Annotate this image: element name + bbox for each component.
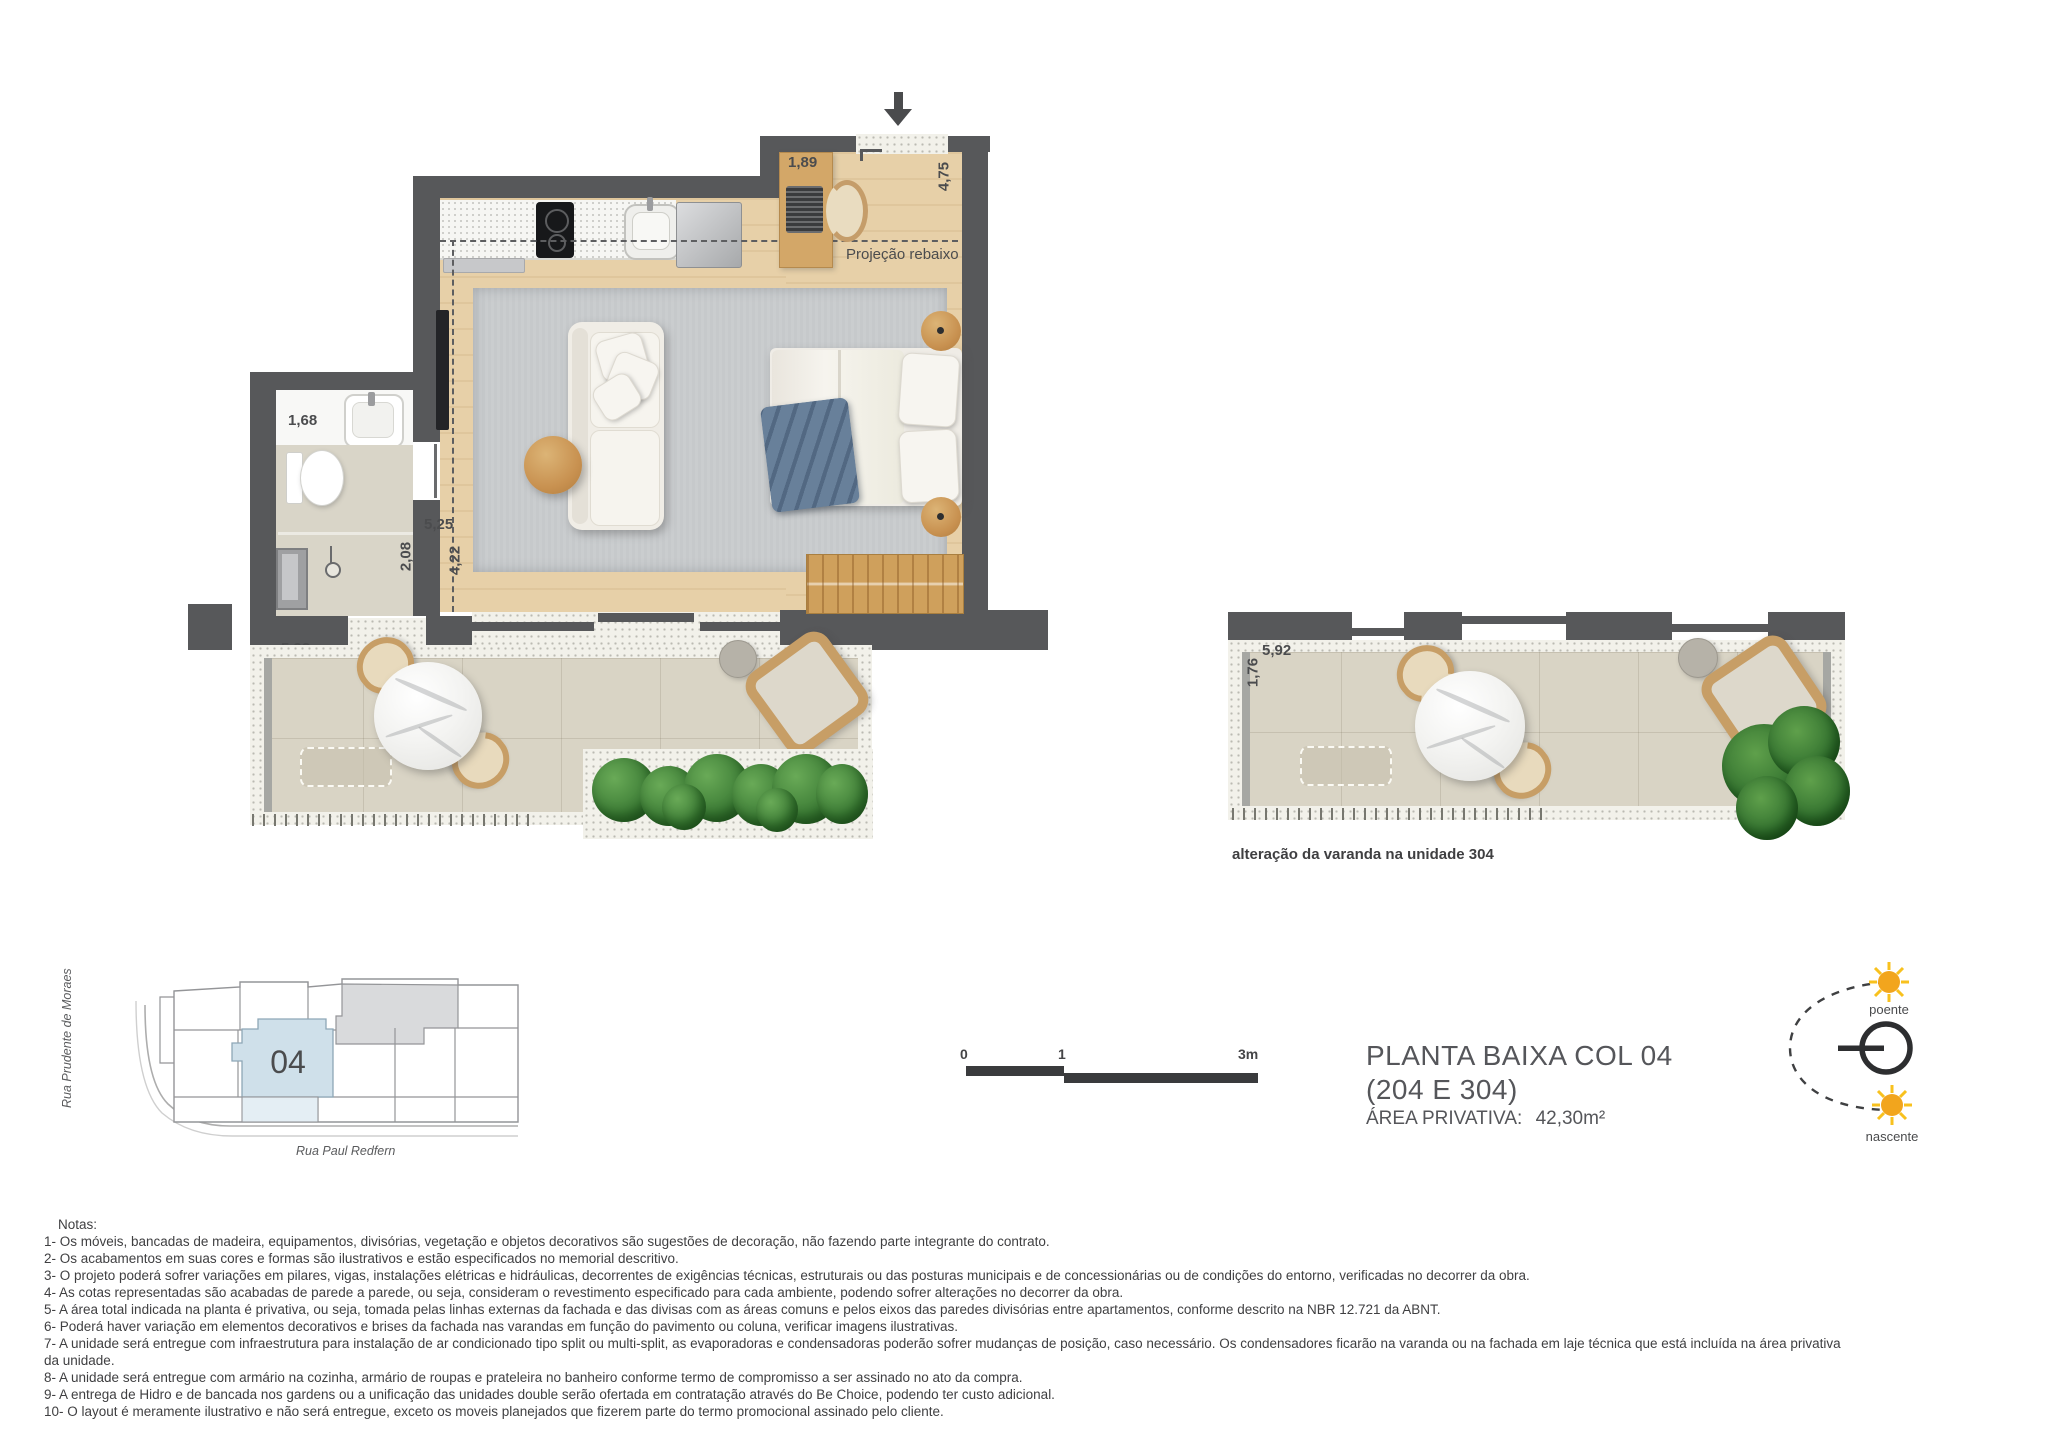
- balcony-edge-hatch: [1232, 808, 1542, 820]
- sofa-cushion: [590, 430, 660, 526]
- laptop: [786, 186, 823, 233]
- entry-arrow-icon: [884, 109, 912, 126]
- sliding-door-panel: [472, 622, 594, 631]
- wall-segment: [250, 372, 440, 390]
- dimension-label: 5,25: [424, 516, 453, 533]
- bed-pillow: [898, 429, 960, 504]
- sun-icon: [1869, 962, 1909, 1002]
- compass-west-label: poente: [1869, 1002, 1909, 1017]
- scale-bar-segment: [1064, 1073, 1258, 1083]
- entry-arrow-stem: [894, 92, 903, 109]
- plant: [756, 788, 798, 832]
- window-frame: [1352, 628, 1404, 636]
- note-item: 8- A unidade será entregue com armário n…: [44, 1369, 1844, 1386]
- wall-segment: [250, 372, 276, 618]
- ceiling-projection-line: [440, 240, 958, 242]
- compass-drawing: poente nascente: [1782, 958, 1997, 1153]
- bench-rack: [806, 554, 964, 614]
- wall-segment: [1404, 612, 1462, 640]
- plan-title-line2: (204 E 304): [1366, 1074, 1518, 1106]
- private-area-label: ÁREA PRIVATIVA:: [1366, 1108, 1522, 1129]
- dimension-label: 1,76: [1245, 648, 1262, 698]
- notes-block: Notas: 1- Os móveis, bancadas de madeira…: [44, 1216, 1844, 1420]
- sun-icon: [1872, 1085, 1912, 1125]
- plan-title-line1: PLANTA BAIXA COL 04: [1366, 1040, 1673, 1072]
- entry-door-leaf: [860, 149, 882, 152]
- kitchen-sink-basin: [632, 212, 670, 250]
- cooktop-burner: [548, 234, 566, 252]
- note-item: 7- A unidade será entregue com infraestr…: [44, 1335, 1844, 1369]
- dimension-label: 4,22: [447, 536, 464, 586]
- note-item: 4- As cotas representadas são acabadas d…: [44, 1284, 1844, 1301]
- desk-chair: [826, 180, 868, 242]
- compass-east-label: nascente: [1866, 1129, 1919, 1144]
- dimension-label: 2,08: [398, 532, 415, 582]
- balcony-railing: [264, 658, 272, 812]
- north-indicator-icon: [1838, 1024, 1910, 1072]
- note-item: 3- O projeto poderá sofrer variações em …: [44, 1267, 1844, 1284]
- note-item: 1- Os móveis, bancadas de madeira, equip…: [44, 1233, 1844, 1250]
- plant: [816, 764, 868, 824]
- note-item: 2- Os acabamentos em suas cores e formas…: [44, 1250, 1844, 1267]
- key-map-unit-number: 04: [270, 1044, 306, 1080]
- bed-blanket: [760, 397, 860, 513]
- scale-tick-1: 1: [1058, 1046, 1066, 1062]
- bathroom-sink-basin: [352, 402, 394, 438]
- plant: [1736, 776, 1798, 840]
- entry-door-leaf: [860, 149, 863, 161]
- shaft-inner: [282, 554, 298, 600]
- window-frame: [1672, 624, 1768, 632]
- wall-segment: [188, 604, 232, 650]
- condenser-area: [1300, 746, 1392, 786]
- kitchen-hood: [443, 258, 525, 273]
- shower-head-icon: [325, 562, 341, 578]
- key-map-drawing: 04: [112, 975, 532, 1170]
- private-area: ÁREA PRIVATIVA: 42,30m²: [1366, 1108, 1605, 1130]
- coffee-table: [524, 436, 582, 494]
- plant: [662, 784, 706, 830]
- refrigerator: [676, 202, 742, 268]
- street-label-bottom: Rua Paul Redfern: [296, 1144, 395, 1158]
- lamp-icon: [937, 327, 944, 334]
- wall-segment: [962, 136, 988, 616]
- note-item: 9- A entrega de Hidro e de bancada nos g…: [44, 1386, 1844, 1403]
- wall-segment: [1566, 612, 1672, 640]
- floor-plan-sheet: Projeção rebaixo: [0, 0, 2048, 1449]
- cooktop-burner: [545, 209, 569, 233]
- key-map-unit-04-balcony: [242, 1097, 318, 1122]
- dimension-label: 1,89: [788, 154, 817, 171]
- dimension-label: 5,92: [1262, 642, 1291, 659]
- toilet: [300, 450, 344, 506]
- sliding-door-panel: [598, 613, 694, 622]
- lamp-icon: [937, 513, 944, 520]
- dimension-label: 4,75: [936, 152, 953, 202]
- sofa-backrest: [572, 328, 588, 524]
- sliding-door-panel: [700, 622, 780, 631]
- balcony-edge-hatch: [252, 814, 532, 826]
- scale-bar-segment: [966, 1066, 1064, 1076]
- shower-divider: [278, 532, 413, 535]
- variation-caption: alteração da varanda na unidade 304: [1232, 846, 1494, 863]
- balcony-table: [374, 662, 482, 770]
- balcony-table: [1415, 671, 1525, 781]
- notes-heading: Notas:: [58, 1216, 1844, 1233]
- note-item: 10- O layout é meramente ilustrativo e n…: [44, 1403, 1844, 1420]
- condenser-area: [300, 747, 392, 787]
- scale-tick-0: 0: [960, 1046, 968, 1062]
- dimension-label: 1,68: [288, 412, 317, 429]
- street-label-left: Rua Prudente de Moraes: [60, 968, 74, 1108]
- window-frame: [1462, 616, 1566, 624]
- wall-segment: [413, 176, 790, 198]
- bathroom-door-leaf: [434, 444, 437, 498]
- tv-panel: [436, 310, 449, 430]
- ceiling-projection-label: Projeção rebaixo: [846, 246, 959, 263]
- bathroom-faucet: [368, 392, 375, 406]
- wall-segment: [1228, 612, 1352, 640]
- note-item: 6- Poderá haver variação em elementos de…: [44, 1318, 1844, 1335]
- kitchen-faucet: [647, 197, 653, 211]
- bed-pillow: [898, 352, 961, 428]
- scale-tick-3m: 3m: [1238, 1046, 1258, 1062]
- private-area-value: 42,30m²: [1536, 1108, 1606, 1129]
- wall-segment: [426, 616, 472, 648]
- note-item: 5- A área total indicada na planta é pri…: [44, 1301, 1844, 1318]
